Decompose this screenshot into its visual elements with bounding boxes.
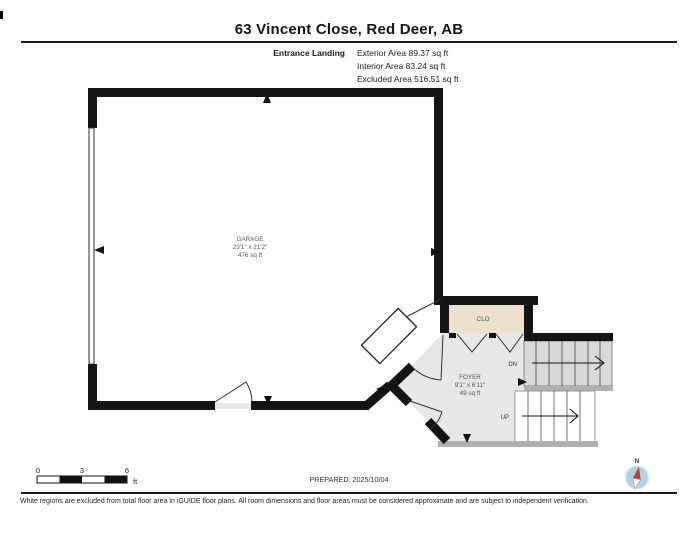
scale-bar: 0 3 6 ft: [36, 466, 138, 486]
compass-north-label: N: [635, 458, 640, 465]
disclaimer-text: White regions are excluded from total fl…: [20, 498, 589, 505]
staircase-down: [524, 341, 613, 391]
wall-top: [88, 88, 442, 97]
closet-wall-left: [440, 305, 449, 333]
scale-bar-segment: [105, 476, 128, 483]
closet-name: CLO: [477, 316, 490, 323]
entry-door-leaf-rect: [361, 308, 416, 363]
marker-left-icon: [94, 246, 104, 254]
compass: N: [626, 458, 649, 490]
garage-door-threshold: [215, 403, 251, 409]
stairs-down-label: DN: [508, 362, 517, 368]
wall-bottom-left: [88, 401, 215, 410]
scale-bar-segment: [60, 476, 83, 483]
floorplan-drawing: GARAGE 23'1" x 21'2" 476 sq ft FOYER 9'1…: [0, 0, 698, 540]
floorplan-page: 63 Vincent Close, Red Deer, AB Entrance …: [0, 0, 698, 540]
stairs-up-label: UP: [501, 415, 509, 421]
closet-door-jamb-left: [449, 333, 456, 338]
closet-wall-top: [434, 296, 538, 305]
garage-dimensions: 23'1" x 21'2": [233, 244, 268, 251]
scale-tick-0: 0: [36, 466, 40, 475]
wall-left-upper: [88, 88, 97, 128]
foyer-dimensions: 9'1" x 6'11": [455, 382, 486, 389]
entry-door-swing-line: [406, 299, 441, 317]
garage-area: 476 sq ft: [238, 252, 262, 259]
footer-divider: [21, 492, 677, 494]
foyer-name: FOYER: [459, 374, 481, 381]
staircase-up: [515, 391, 595, 442]
foyer-area: 49 sq ft: [460, 390, 481, 397]
wall-diagonal-garage: [365, 385, 390, 407]
garage-name: GARAGE: [237, 236, 264, 243]
foyer-bottom-shadow: [438, 441, 598, 447]
window-left-wall: [89, 128, 94, 364]
scale-tick-3: 3: [80, 466, 84, 475]
stairs-wall-top: [524, 333, 613, 341]
entry-door-leaf: [361, 308, 416, 363]
scale-tick-6: 6: [125, 466, 129, 475]
scale-unit: ft: [133, 477, 138, 486]
closet-door-jamb-mid: [489, 333, 496, 338]
wall-right: [434, 88, 443, 305]
garage-door-swing: [215, 382, 252, 402]
prepared-date: PREPARED: 2025/10/04: [310, 475, 389, 484]
stairs-down-shadow: [524, 386, 613, 391]
